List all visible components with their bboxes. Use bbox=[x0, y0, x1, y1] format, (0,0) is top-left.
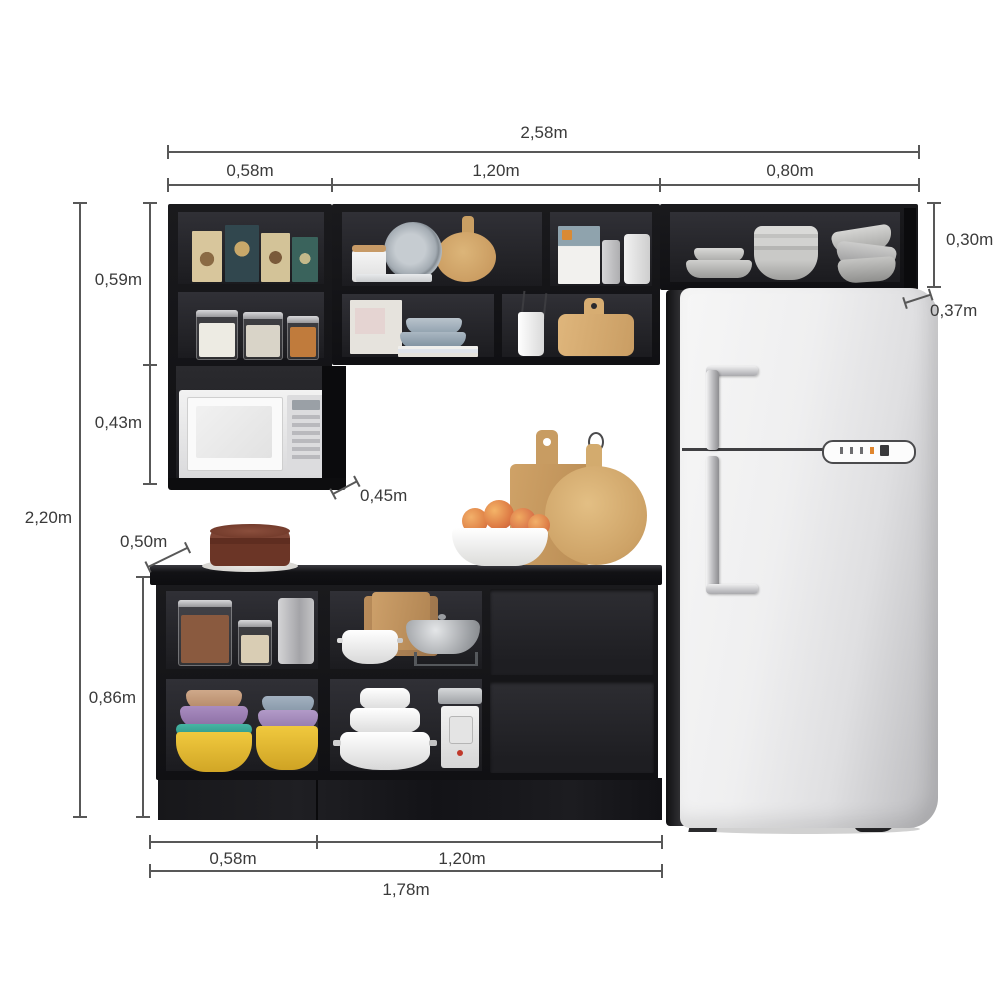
microwave-door bbox=[187, 397, 283, 471]
tick bbox=[331, 178, 333, 192]
scale-platform bbox=[438, 688, 482, 704]
small-bowl-stack-lower bbox=[686, 260, 752, 278]
dim-label-total-width: 2,58m bbox=[504, 123, 584, 143]
tick bbox=[73, 202, 87, 204]
dim-label-top-seg-right: 0,80m bbox=[750, 161, 830, 181]
chafing-dish bbox=[406, 620, 480, 654]
dim-label-base-total: 1,78m bbox=[366, 880, 446, 900]
chocolate-cake bbox=[210, 528, 290, 566]
plinth-seam bbox=[316, 778, 318, 820]
scale-dial bbox=[449, 716, 473, 744]
dim-label-base-seg-right: 1,20m bbox=[422, 849, 502, 869]
microwave bbox=[179, 390, 331, 482]
canister-steel bbox=[278, 598, 314, 664]
round-serving-board bbox=[545, 466, 647, 565]
pot-large bbox=[340, 732, 430, 770]
control-tick-3 bbox=[860, 447, 863, 454]
dim-label-base-seg-left: 0,58m bbox=[193, 849, 273, 869]
control-tick-1 bbox=[840, 447, 843, 454]
wall-left-bottom-panel bbox=[168, 478, 346, 490]
storage-jar-cookies bbox=[287, 316, 319, 360]
cereal-box-beige-2 bbox=[261, 233, 290, 282]
product-dimension-diagram: 2,58m 0,58m 1,20m 0,80m 0,30m 0,37m 2,20… bbox=[0, 0, 1000, 1000]
tick bbox=[167, 145, 169, 159]
wall-right-side-panel bbox=[904, 208, 916, 288]
dim-label-lower-section: 0,43m bbox=[86, 413, 142, 433]
fruit-bowl bbox=[452, 528, 548, 566]
cereal-box-beige-1 bbox=[192, 231, 222, 282]
dim-label-counter-depth: 0,50m bbox=[120, 532, 167, 552]
microwave-control-panel bbox=[287, 395, 325, 475]
dim-line-right-height bbox=[933, 203, 935, 287]
control-switch bbox=[880, 445, 889, 456]
dim-line-base-total bbox=[150, 870, 663, 872]
dim-line-base-segments bbox=[150, 841, 663, 843]
base-plinth bbox=[158, 778, 662, 820]
fridge-handle-bottom-bar bbox=[706, 456, 719, 592]
scale-body bbox=[441, 706, 479, 768]
cereal-box-teal bbox=[292, 237, 318, 282]
white-stock-pot bbox=[342, 630, 398, 664]
fridge-handle-bottom-cap bbox=[706, 584, 758, 594]
cookbook bbox=[350, 300, 402, 354]
tick bbox=[316, 835, 318, 849]
utensil-cup bbox=[518, 312, 544, 356]
dim-label-right-height: 0,30m bbox=[946, 230, 993, 250]
canister-small bbox=[602, 240, 620, 284]
rect-board-hole bbox=[543, 438, 551, 446]
tick bbox=[661, 864, 663, 878]
canister-flour bbox=[238, 620, 272, 666]
canister-large bbox=[624, 234, 650, 284]
dim-line-top-segments bbox=[168, 184, 920, 186]
refrigerator bbox=[666, 286, 942, 836]
control-indicator-orange bbox=[870, 447, 874, 454]
wall-left-depth-panel bbox=[322, 366, 346, 482]
round-cutting-board bbox=[436, 232, 496, 282]
tick bbox=[143, 364, 157, 366]
rect-cutting-board-handle bbox=[536, 430, 558, 468]
dim-label-upper-section: 0,59m bbox=[86, 270, 142, 290]
tick bbox=[136, 816, 150, 818]
fruit-bowl-peach-2 bbox=[484, 500, 514, 530]
dim-label-total-height: 2,20m bbox=[14, 508, 72, 528]
dim-label-top-seg-left: 0,58m bbox=[210, 161, 290, 181]
tick bbox=[143, 483, 157, 485]
control-tick-2 bbox=[850, 447, 853, 454]
bowl-yellow-2 bbox=[256, 726, 318, 770]
dim-label-top-seg-middle: 1,20m bbox=[456, 161, 536, 181]
tick bbox=[136, 576, 150, 578]
tick bbox=[659, 178, 661, 192]
dim-line-total-width bbox=[168, 151, 920, 153]
tick bbox=[918, 145, 920, 159]
tick bbox=[149, 835, 151, 849]
dim-line-base-height bbox=[142, 577, 144, 818]
cereal-box-dark bbox=[225, 225, 259, 282]
paddle-cutting-board bbox=[558, 314, 634, 356]
board-hole bbox=[591, 303, 597, 309]
fridge-control-panel bbox=[822, 440, 916, 464]
chafing-knob bbox=[438, 614, 446, 620]
tick bbox=[918, 178, 920, 192]
microwave-window bbox=[196, 406, 272, 458]
microwave-display bbox=[292, 400, 320, 410]
stacked-books bbox=[398, 346, 478, 357]
tick bbox=[661, 835, 663, 849]
muesli-box bbox=[558, 226, 600, 284]
canister-brown-grains bbox=[178, 600, 232, 666]
fridge-handle-top-bar bbox=[706, 370, 719, 450]
dim-line-total-height bbox=[79, 203, 81, 818]
storage-jar-grains bbox=[243, 312, 283, 360]
large-bowl-stack bbox=[754, 226, 818, 280]
tick bbox=[73, 816, 87, 818]
dim-label-base-height: 0,86m bbox=[82, 688, 136, 708]
dim-line-left-sections bbox=[149, 203, 151, 485]
fridge-door-split bbox=[682, 448, 832, 451]
microwave-keypad bbox=[292, 415, 320, 463]
serving-tray bbox=[356, 274, 432, 282]
dim-label-right-depth: 0,37m bbox=[930, 301, 977, 321]
tick bbox=[143, 202, 157, 204]
dim-label-wall-depth: 0,45m bbox=[360, 486, 407, 506]
kitchen-scale bbox=[438, 688, 482, 770]
storage-jar-rice bbox=[196, 310, 238, 360]
tick bbox=[167, 178, 169, 192]
chafing-stand bbox=[414, 652, 478, 666]
tick bbox=[149, 864, 151, 878]
drawer-top bbox=[490, 589, 654, 675]
drawer-bottom bbox=[490, 681, 654, 773]
scale-button bbox=[457, 750, 463, 756]
tick bbox=[927, 202, 941, 204]
